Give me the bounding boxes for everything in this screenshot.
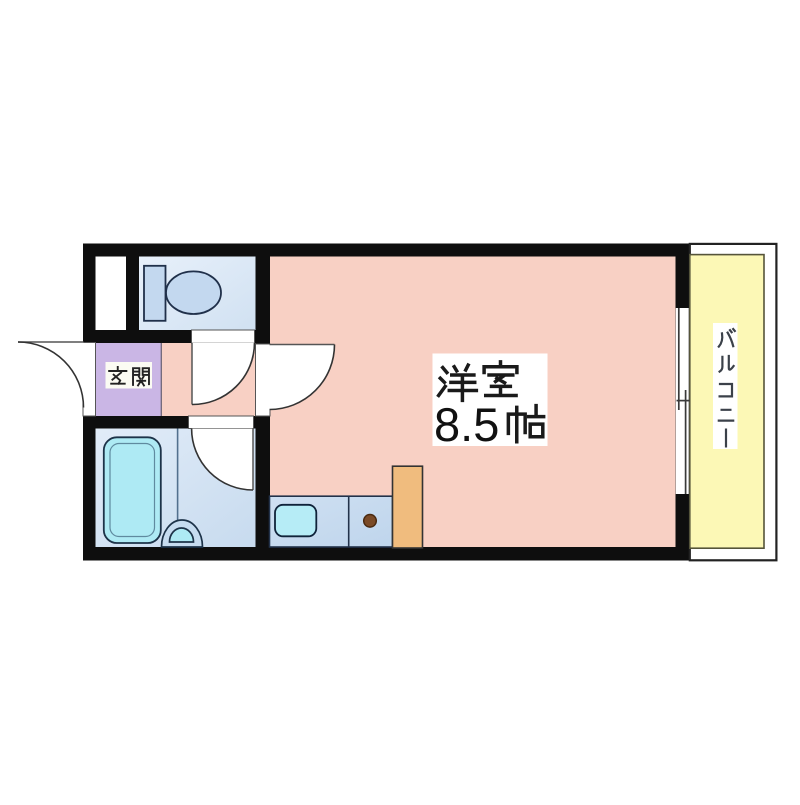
svg-text:8.5: 8.5 <box>434 398 499 451</box>
